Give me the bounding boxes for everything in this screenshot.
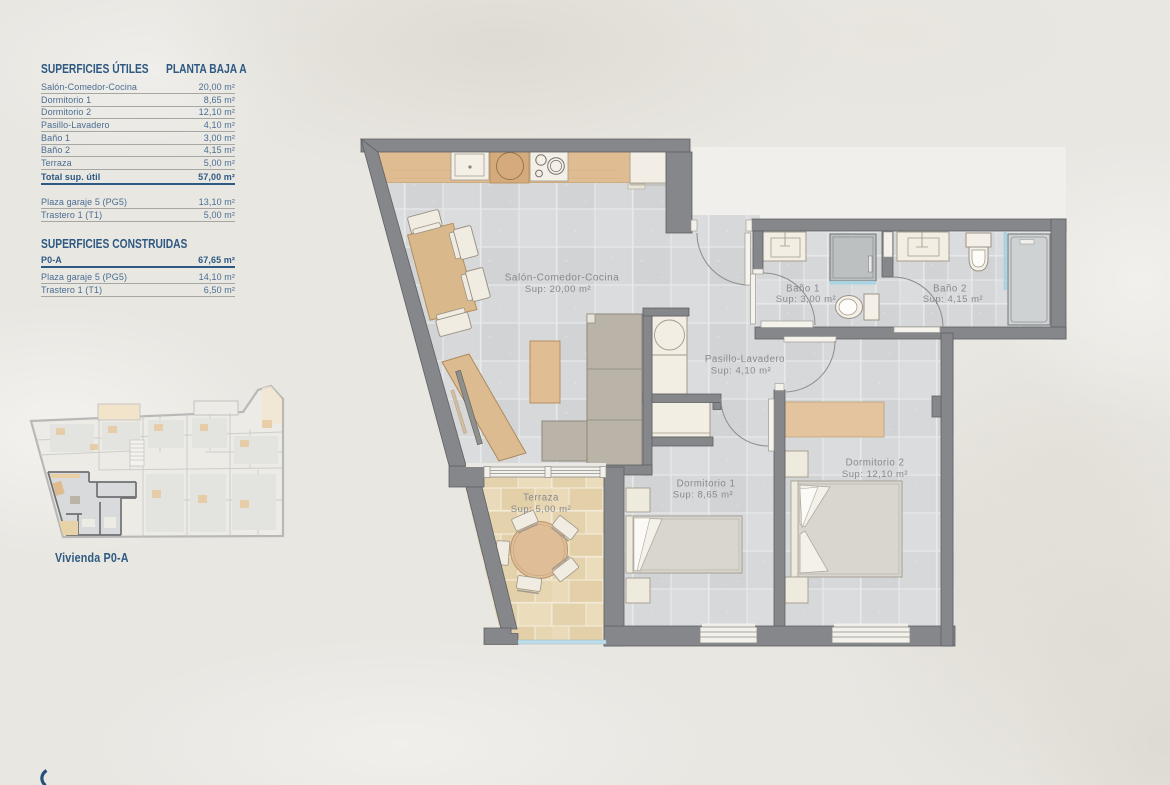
svg-text:Sup: 5,00 m²: Sup: 5,00 m² (511, 504, 571, 515)
svg-text:Sup: 8,65 m²: Sup: 8,65 m² (673, 490, 733, 501)
svg-text:Dormitorio 2: Dormitorio 2 (846, 458, 905, 469)
svg-text:Sup: 4,10 m²: Sup: 4,10 m² (711, 366, 771, 377)
svg-text:Pasillo-Lavadero: Pasillo-Lavadero (705, 354, 785, 365)
svg-text:Salón-Comedor-Cocina: Salón-Comedor-Cocina (505, 273, 620, 284)
svg-text:Baño 2: Baño 2 (933, 284, 967, 295)
svg-text:Sup: 12,10 m²: Sup: 12,10 m² (842, 469, 908, 480)
svg-text:Sup: 4,15 m²: Sup: 4,15 m² (923, 294, 983, 305)
svg-text:Sup: 20,00 m²: Sup: 20,00 m² (525, 284, 591, 295)
svg-text:Baño 1: Baño 1 (786, 284, 820, 295)
svg-text:Sup: 3,00 m²: Sup: 3,00 m² (776, 294, 836, 305)
svg-text:Dormitorio 1: Dormitorio 1 (677, 479, 736, 490)
svg-text:Terraza: Terraza (523, 493, 559, 504)
